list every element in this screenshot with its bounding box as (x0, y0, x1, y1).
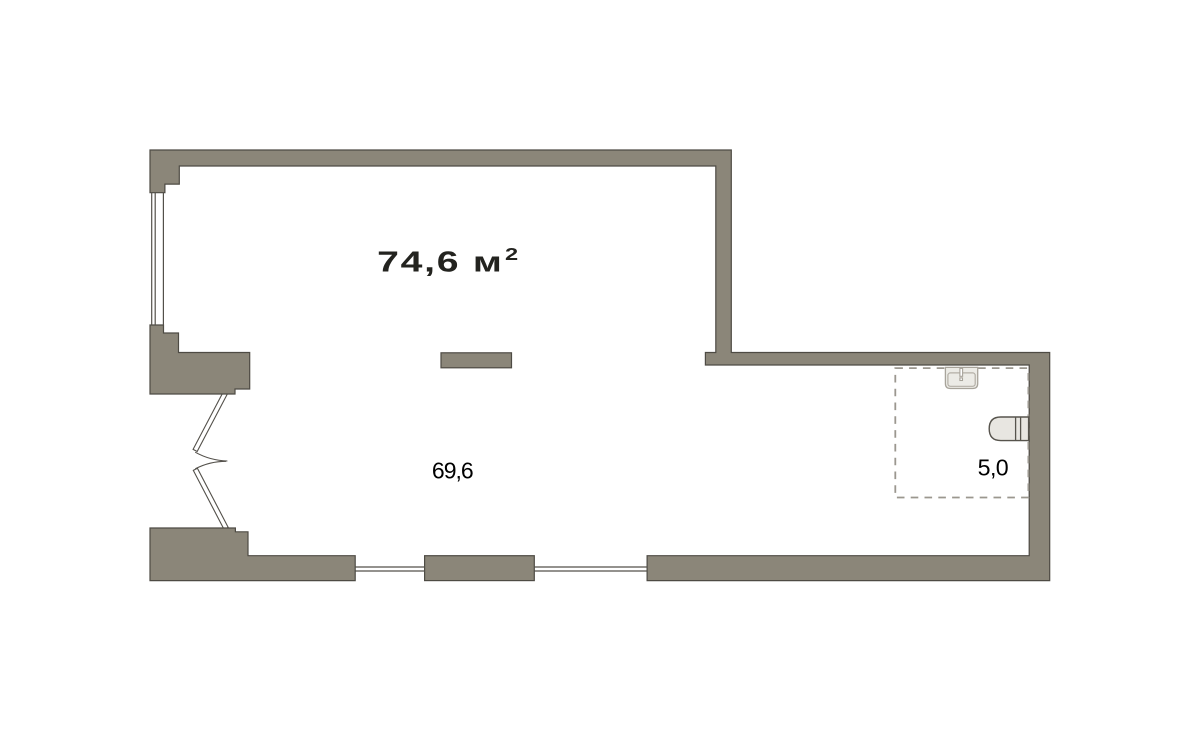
svg-text:5,0: 5,0 (978, 454, 1008, 480)
svg-text:69,6: 69,6 (432, 457, 473, 483)
svg-text:74,6 м2: 74,6 м2 (377, 245, 520, 278)
